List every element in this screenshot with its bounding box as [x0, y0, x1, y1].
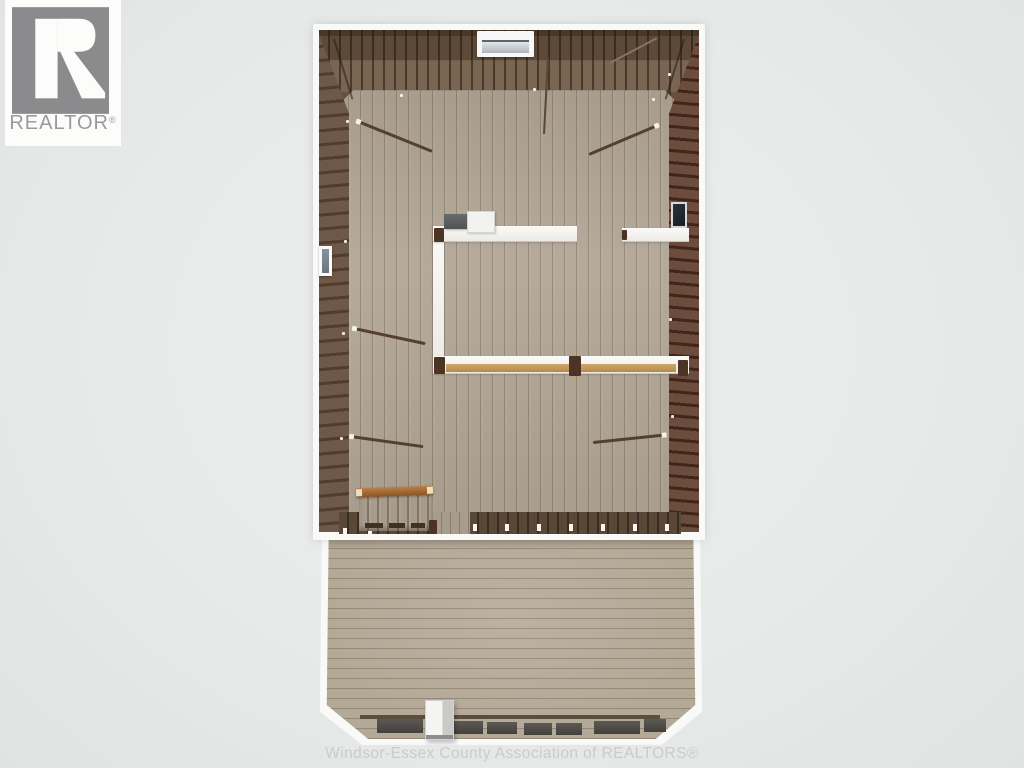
railing-cap — [427, 487, 433, 494]
lower-level-window — [644, 719, 666, 732]
wood-top-plate — [446, 364, 676, 372]
registered-mark: ® — [109, 115, 117, 125]
stair-newel-post — [429, 520, 437, 534]
skylight-glass — [482, 40, 529, 53]
nail-dot — [346, 120, 349, 123]
railing-cap — [356, 489, 362, 496]
wall-post — [569, 356, 581, 376]
storage-box — [467, 211, 495, 233]
nail-dot — [533, 88, 536, 91]
tread-shadow — [389, 523, 405, 528]
realtor-logo-icon — [12, 7, 109, 114]
deck-vent-box — [425, 700, 454, 740]
realtor-logo-label: REALTOR® — [5, 112, 121, 135]
room-wall-top-right-segment — [622, 228, 689, 242]
nail-dot — [342, 332, 345, 335]
hvac-unit — [444, 214, 468, 229]
realtor-logo-badge: REALTOR® — [5, 0, 121, 146]
lower-level-window — [377, 719, 423, 733]
lower-level-window — [594, 721, 640, 734]
wall-stud-tick — [569, 524, 573, 531]
nail-dot — [669, 318, 672, 321]
wall-stud-tick — [601, 524, 605, 531]
left-wall-window — [319, 246, 332, 276]
left-window-glass — [322, 249, 329, 273]
lower-level-window — [450, 721, 483, 734]
realtor-logo-word: REALTOR — [9, 112, 109, 134]
lower-level-window — [556, 723, 582, 735]
rear-deck — [316, 532, 706, 746]
nail-dot — [671, 415, 674, 418]
nail-dot — [400, 94, 403, 97]
roof-edge-right — [669, 34, 699, 532]
attic-floor — [337, 82, 683, 518]
room-wall-left — [433, 226, 444, 373]
nail-dot — [668, 73, 671, 76]
lower-level-window — [487, 722, 517, 734]
wall-stud-tick — [473, 524, 477, 531]
wall-stud-tick — [633, 524, 637, 531]
stair-opening — [433, 512, 470, 534]
lower-level-window — [524, 723, 552, 735]
upper-structure — [313, 24, 705, 540]
skylight-window — [477, 31, 534, 57]
deck-floor — [323, 539, 699, 739]
wall-stud-tick — [665, 524, 669, 531]
wall-post — [678, 360, 688, 376]
room-wall-bottom — [433, 356, 689, 374]
watermark-text: Windsor-Essex County Association of REAL… — [0, 745, 1024, 763]
nail-dot — [652, 98, 655, 101]
door-jamb-post — [622, 230, 627, 240]
wall-stud-tick — [343, 528, 347, 535]
floorplan-canvas: REALTOR® — [0, 0, 1024, 768]
right-window-glass — [673, 204, 685, 226]
wall-stud-tick — [537, 524, 541, 531]
tread-shadow — [411, 523, 425, 528]
nail-dot — [344, 240, 347, 243]
wall-stud-tick — [505, 524, 509, 531]
tread-shadow — [365, 523, 383, 528]
nail-dot — [340, 437, 343, 440]
stair-treads — [359, 495, 433, 531]
wall-post — [434, 228, 444, 242]
roof-edge-left — [319, 34, 349, 532]
wall-post — [434, 357, 445, 374]
right-wall-window — [671, 202, 687, 228]
